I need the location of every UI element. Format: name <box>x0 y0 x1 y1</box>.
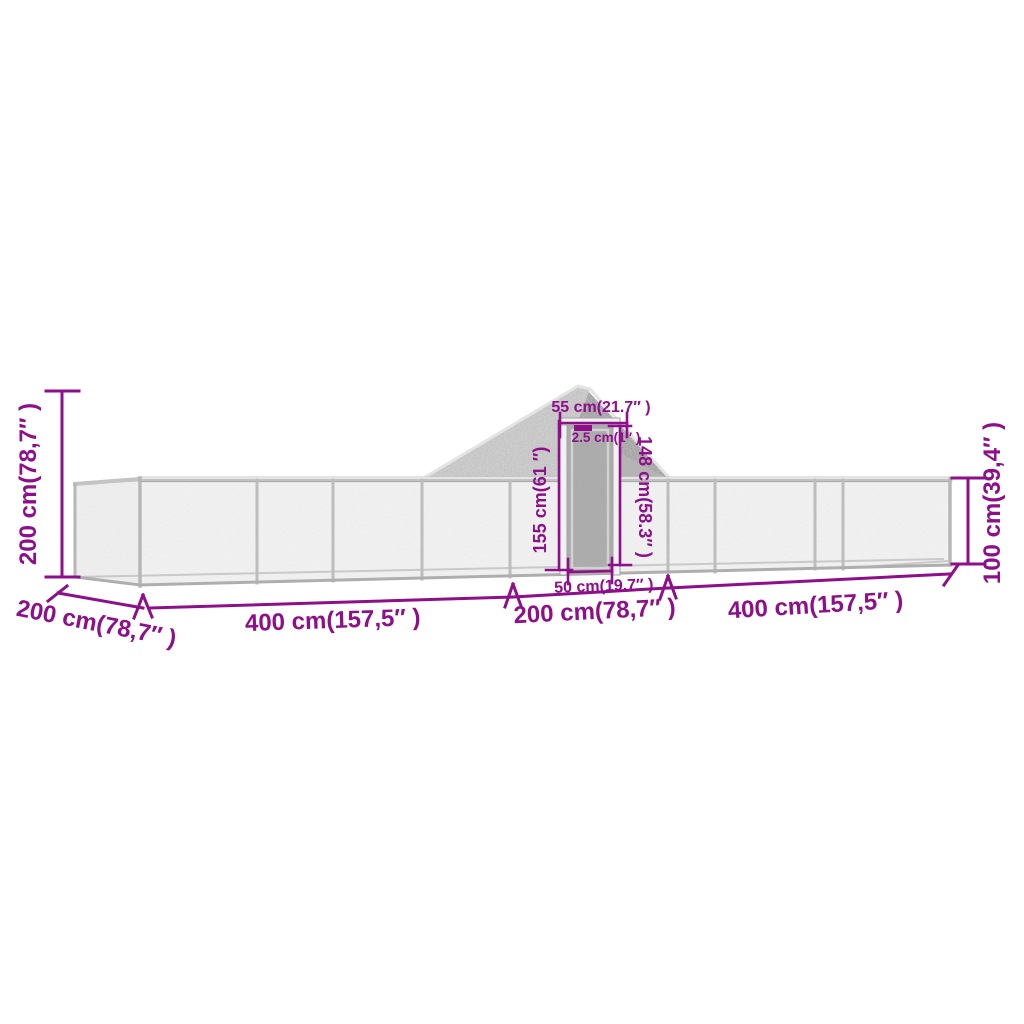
dim-label-door-height-inner: 148 cm(58.3″ ) <box>635 436 655 558</box>
dim-label-door-frame-width: 55 cm(21.7″ ) <box>551 399 650 416</box>
door-frame-left <box>560 418 567 575</box>
dim-label-run-left: 400 cm(157,5″ ) <box>245 604 421 637</box>
dim-label-left-height: 200 cm(78,7″ ) <box>15 403 42 565</box>
dim-label-mid-section: 200 cm(78,7″ ) <box>513 594 676 629</box>
diagram-canvas: 200 cm(78,7″ ) 100 cm(39,4″ ) 200 cm(78,… <box>0 0 1024 1024</box>
dim-label-tube-thickness: 2.5 cm(1″ ) <box>572 430 641 445</box>
dim-label-run-right: 400 cm(157,5″ ) <box>727 587 904 625</box>
dim-line-door-width <box>568 571 612 572</box>
dim-label-door-height-outer: 155 cm(61 ″) <box>530 447 550 554</box>
dim-label-right-height: 100 cm(39,4″ ) <box>979 422 1006 584</box>
coop-dimension-diagram: 200 cm(78,7″ ) 100 cm(39,4″ ) 200 cm(78,… <box>0 0 1024 1024</box>
dim-tick <box>505 584 513 607</box>
dim-line-run-right <box>668 574 950 588</box>
dim-label-depth: 200 cm(78,7″ ) <box>14 595 178 652</box>
mesh-left-end <box>75 481 140 585</box>
dim-tick <box>143 595 152 617</box>
coop-structure <box>75 386 950 586</box>
dim-label-door-width: 50 cm(19.7″ ) <box>554 576 654 596</box>
